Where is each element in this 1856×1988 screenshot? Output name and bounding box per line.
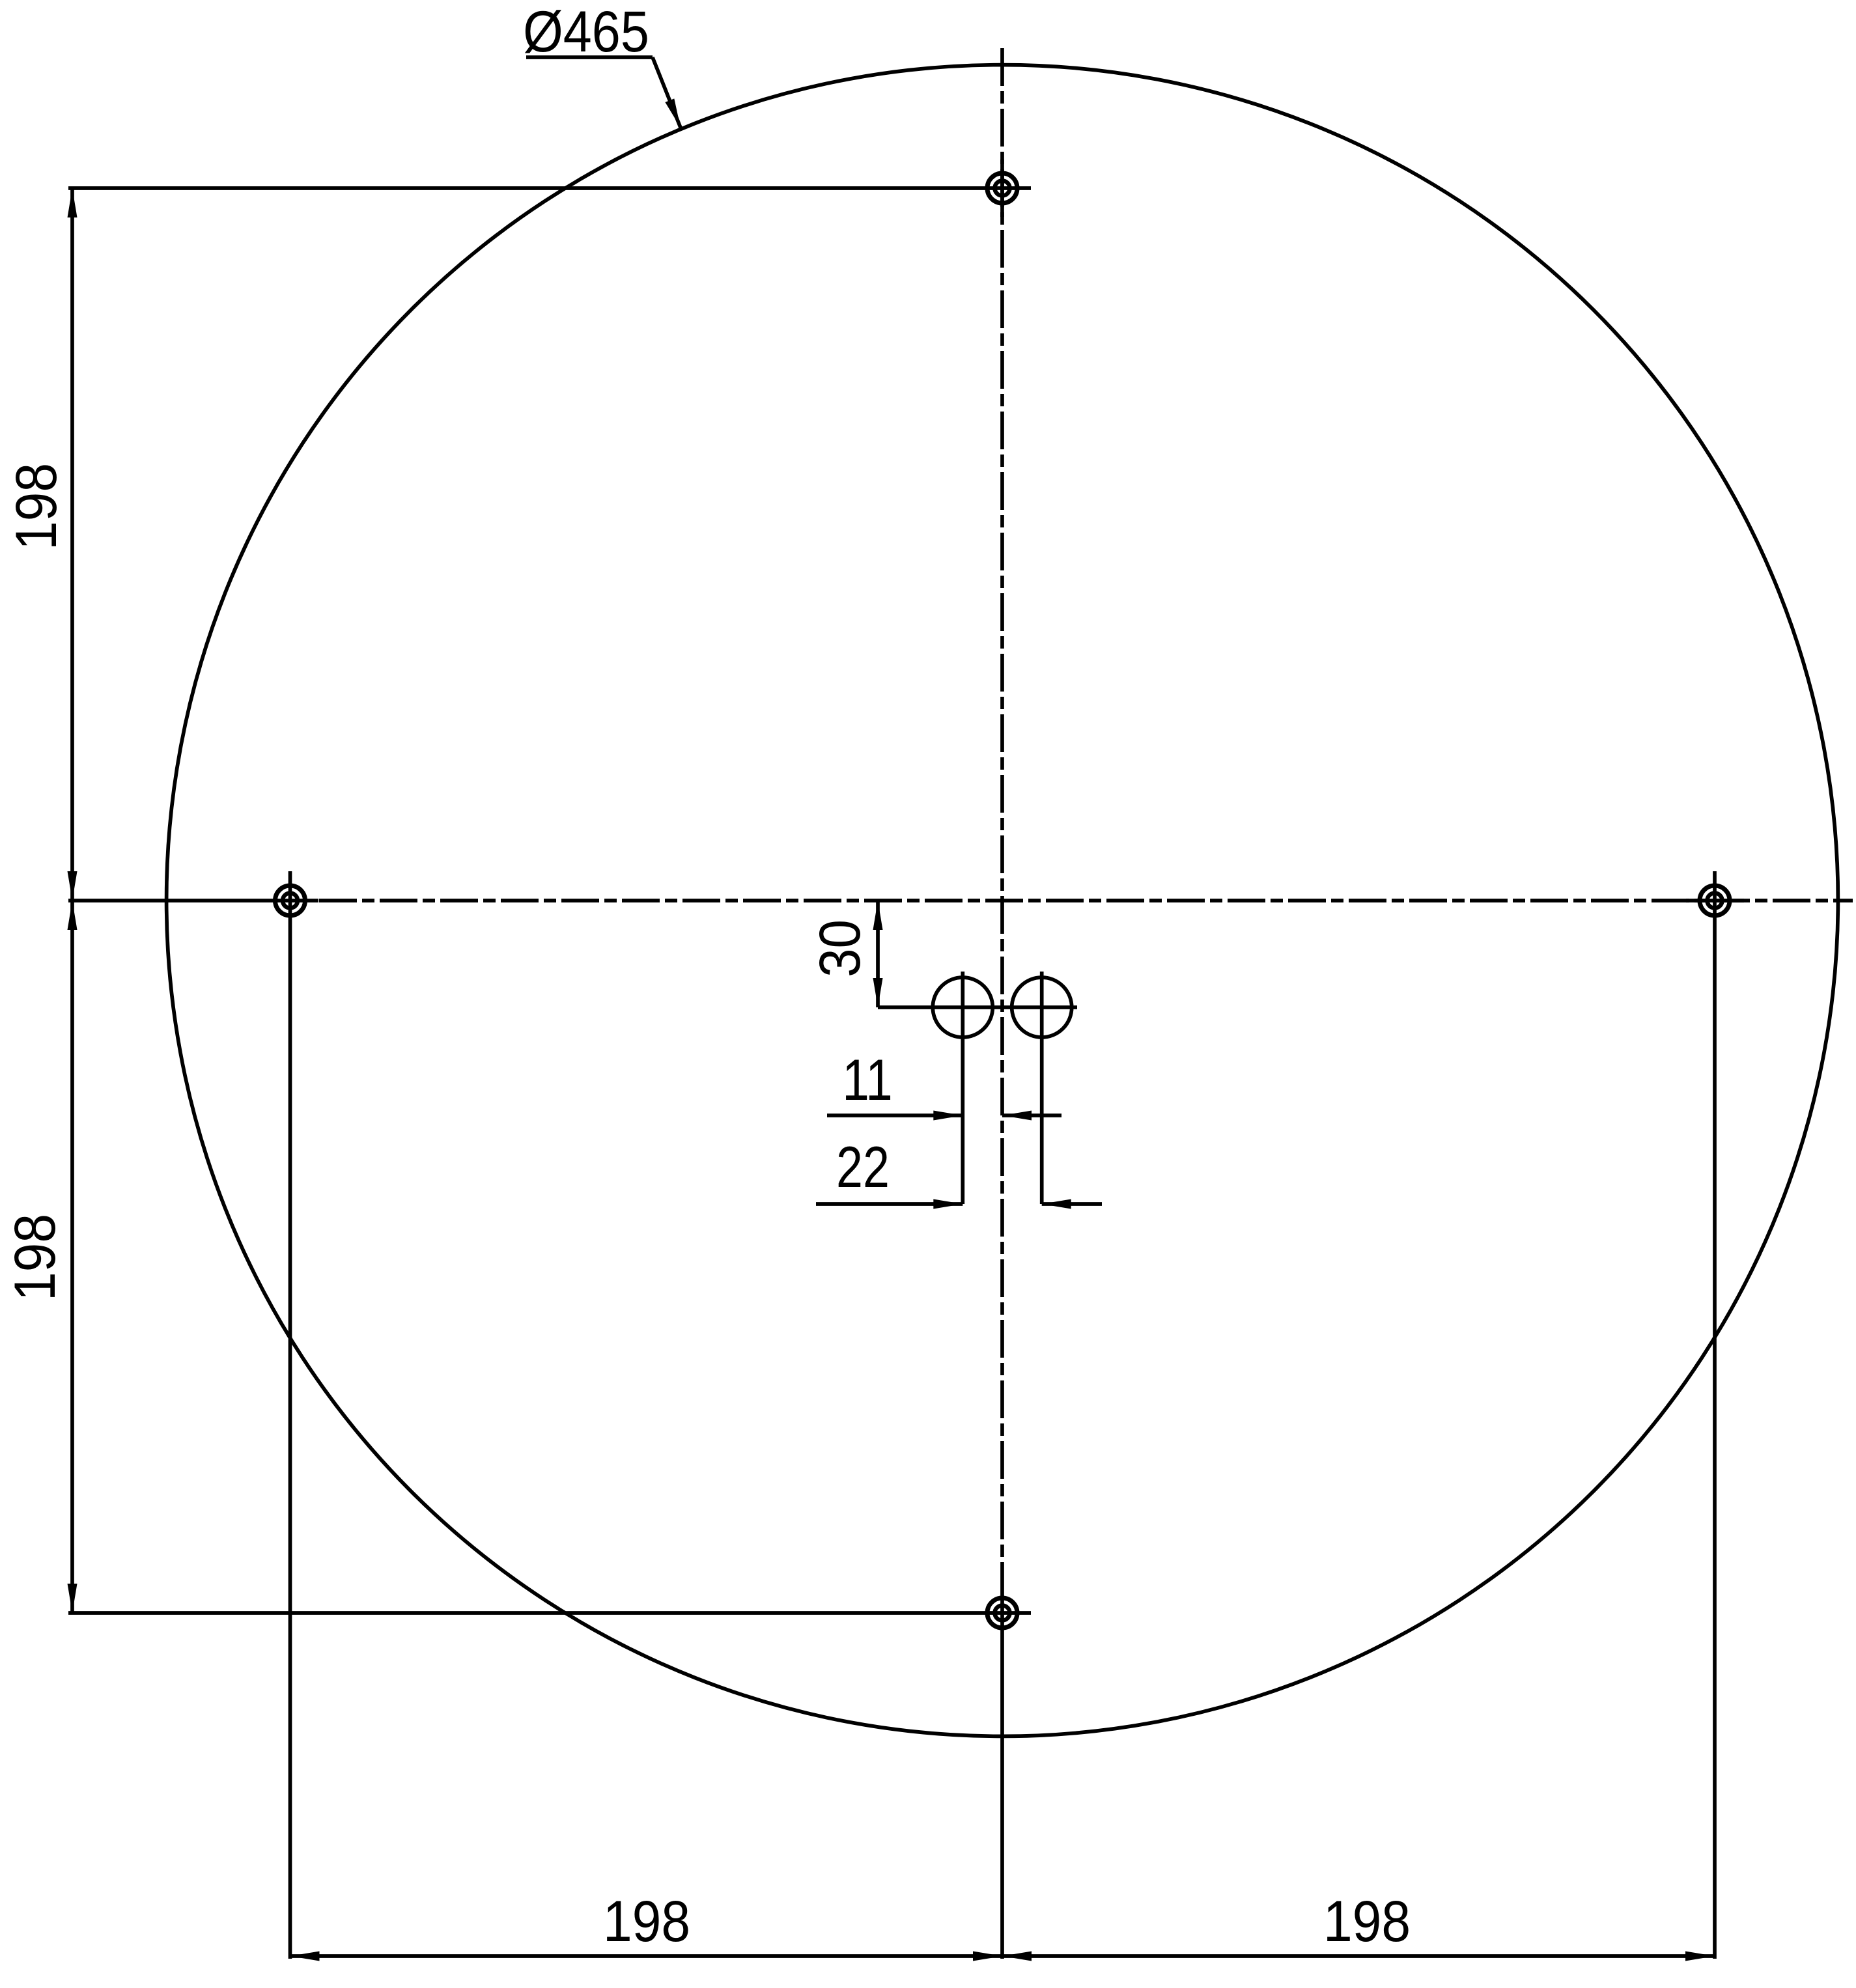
svg-text:22: 22 — [836, 1136, 890, 1200]
svg-text:Ø465: Ø465 — [523, 0, 649, 64]
svg-text:198: 198 — [1323, 1888, 1411, 1953]
svg-text:198: 198 — [3, 463, 68, 550]
svg-text:11: 11 — [842, 1048, 892, 1113]
svg-text:198: 198 — [2, 1214, 67, 1301]
svg-text:198: 198 — [603, 1888, 690, 1953]
svg-text:30: 30 — [808, 919, 872, 977]
